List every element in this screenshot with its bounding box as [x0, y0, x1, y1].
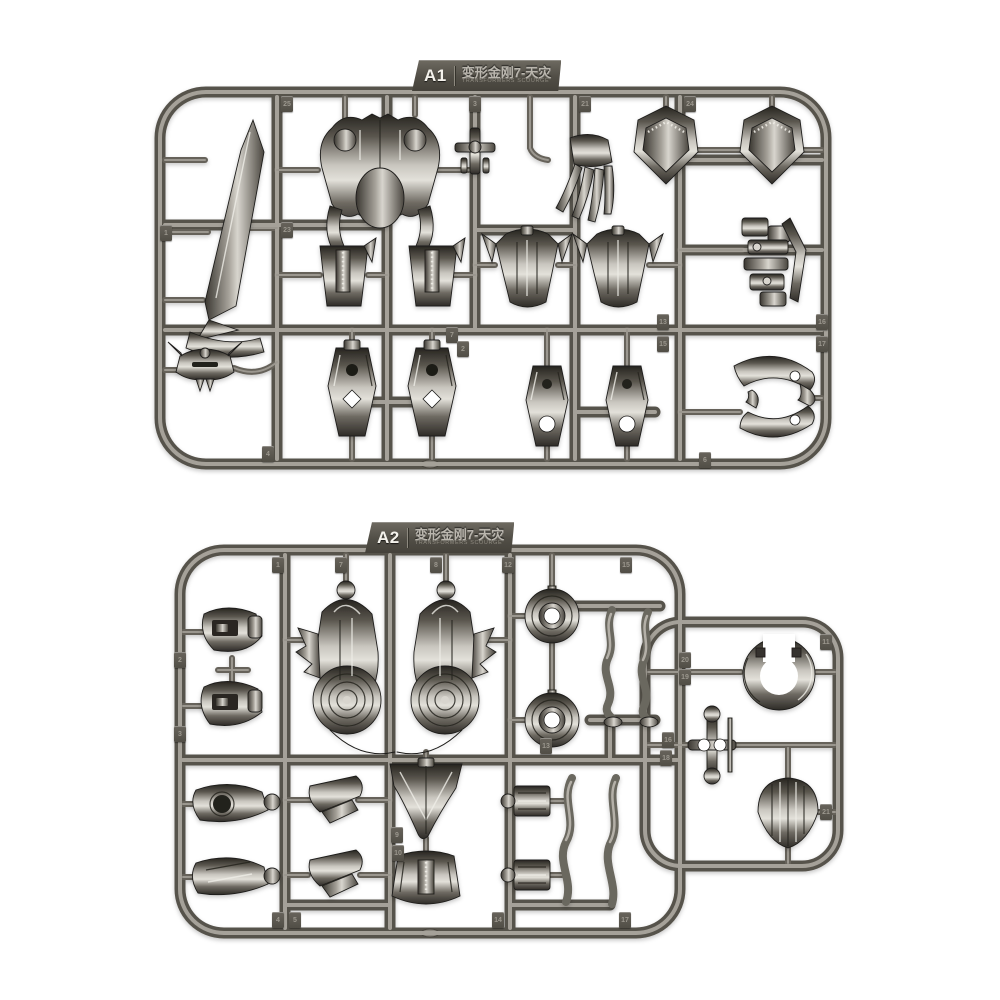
- part-forearm-pod-lower: [192, 858, 280, 895]
- part-number-tag: 14: [492, 912, 504, 928]
- part-shoulder-armor-right: [740, 106, 804, 184]
- part-number-tag: 4: [262, 446, 274, 462]
- part-chest-armor: [320, 114, 439, 252]
- part-shoulder-wheel-left: [296, 581, 395, 754]
- sprue-code-a1: A1: [424, 66, 447, 86]
- kit-title-cn: 变形金刚7-天灾: [462, 66, 552, 80]
- sprue-code-a2: A2: [377, 528, 400, 548]
- part-number-tag: 7: [335, 557, 347, 573]
- part-number-tag: 2: [457, 341, 469, 357]
- part-number-tag: 18: [660, 750, 672, 766]
- part-number-tag: 16: [662, 732, 674, 748]
- part-sword-blade: [186, 120, 264, 357]
- part-number-tag: 3: [469, 96, 481, 112]
- part-dome-shoulder: [758, 778, 818, 848]
- part-number-tag: 8: [430, 557, 442, 573]
- part-number-tag: 13: [657, 314, 669, 330]
- part-forearm-bucket-left: [320, 238, 376, 306]
- kit-title-cn: 变形金刚7-天灾: [415, 528, 505, 542]
- part-number-tag: 16: [816, 314, 828, 330]
- kit-subtitle-en: TRANSFORMERS SCOURGE: [462, 79, 552, 85]
- part-number-tag: 5: [289, 912, 301, 928]
- part-fin-foot-lower: [309, 850, 362, 897]
- part-thigh-left: [328, 340, 376, 436]
- part-ball-joint-cross: [688, 706, 736, 784]
- part-head-shell-upper: [202, 608, 262, 651]
- sprue-artwork: [0, 0, 1000, 1000]
- part-forearm-pod-upper: [193, 784, 280, 821]
- part-number-tag: 21: [820, 804, 832, 820]
- part-wheel-hub-upper: [525, 586, 579, 643]
- part-number-tag: 13: [540, 738, 552, 754]
- part-number-tag: 7: [446, 327, 458, 343]
- kit-subtitle-en: TRANSFORMERS SCOURGE: [415, 541, 505, 547]
- part-thigh-right: [408, 340, 456, 436]
- part-lower-leg-right: [606, 366, 648, 446]
- part-number-tag: 10: [392, 845, 404, 861]
- part-number-tag: 15: [657, 336, 669, 352]
- part-number-tag: 4: [272, 912, 284, 928]
- part-collar-clamp: [743, 634, 815, 710]
- part-number-tag: 24: [684, 96, 696, 112]
- part-number-tag: 15: [620, 557, 632, 573]
- part-number-tag: 11: [820, 634, 832, 650]
- part-leg-linkage-pair: [563, 778, 616, 904]
- part-number-tag: 6: [699, 452, 711, 468]
- part-number-tag: 20: [679, 652, 691, 668]
- part-number-tag: 17: [816, 336, 828, 352]
- part-head-shell-lower: [201, 681, 262, 725]
- part-number-tag: 19: [679, 669, 691, 685]
- part-number-tag: 21: [579, 96, 591, 112]
- photo-canvas: A1 变形金刚7-天灾 TRANSFORMERS SCOURGE A2 变形金刚…: [0, 0, 1000, 1000]
- part-number-tag: 9: [391, 827, 403, 843]
- sprue-tag-a1: A1 变形金刚7-天灾 TRANSFORMERS SCOURGE: [412, 60, 561, 91]
- tag-divider: [407, 528, 408, 548]
- part-fin-foot-upper: [309, 776, 362, 823]
- part-mechanism-cluster: [742, 218, 806, 306]
- part-number-tag: 3: [174, 726, 186, 742]
- part-number-tag: 25: [281, 96, 293, 112]
- part-shoulder-armor-left: [634, 106, 698, 184]
- part-lower-leg-left: [526, 366, 568, 446]
- part-number-tag: 1: [160, 225, 172, 241]
- tag-divider: [454, 66, 455, 86]
- sprue-tag-a2: A2 变形金刚7-天灾 TRANSFORMERS SCOURGE: [365, 522, 514, 553]
- part-number-tag: 2: [174, 652, 186, 668]
- part-number-tag: 12: [502, 557, 514, 573]
- part-claw-hand: [556, 134, 614, 222]
- part-curved-armor-ring: [734, 356, 815, 437]
- part-number-tag: 23: [281, 222, 293, 238]
- part-number-tag: 1: [272, 557, 284, 573]
- part-number-tag: 17: [619, 912, 631, 928]
- part-wheel-hub-lower: [525, 690, 579, 747]
- part-small-connector: [455, 128, 495, 174]
